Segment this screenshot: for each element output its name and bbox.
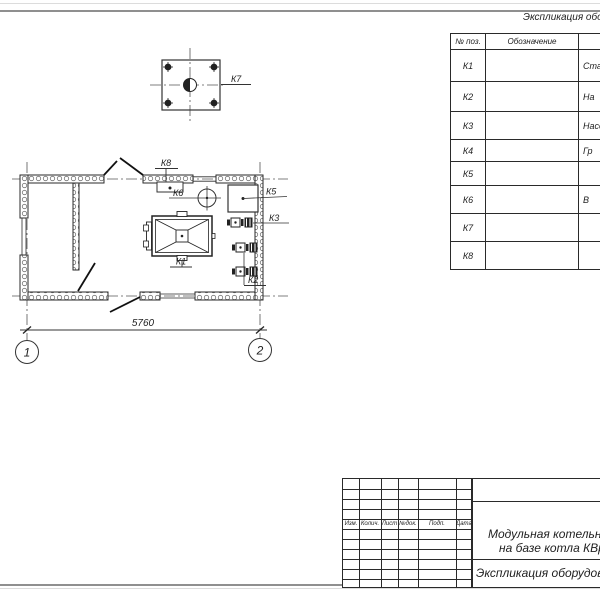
label-k2: К2 <box>248 275 258 285</box>
tb-col-list: Лист <box>381 519 398 529</box>
header-pos: № поз. <box>451 34 486 49</box>
boiler-k1: К1 <box>144 212 216 268</box>
cell-designation <box>486 242 579 269</box>
cell-designation <box>486 82 579 111</box>
title-block: Изм. Колич. Лист №док. Подп. Дата Модуль… <box>342 478 600 588</box>
cell-pos: К5 <box>451 162 486 185</box>
table-row: К4 Гр <box>451 139 600 161</box>
cell-designation <box>486 112 579 139</box>
cell-name: В <box>579 186 600 213</box>
title-block-line <box>343 579 471 580</box>
table-row: К1 Стал <box>451 49 600 81</box>
title-block-line <box>456 479 457 587</box>
table-row: К3 Насос <box>451 111 600 139</box>
label-k6: К6 <box>173 188 183 198</box>
title-block-line <box>343 539 471 540</box>
cell-name <box>579 214 600 241</box>
title-block-line <box>471 501 600 502</box>
table-row: К6 В <box>451 185 600 213</box>
cell-name: Стал <box>579 50 600 81</box>
title-block-line <box>343 569 471 570</box>
cell-pos: К7 <box>451 214 486 241</box>
title-block-line <box>381 479 382 587</box>
cell-name <box>579 242 600 269</box>
title-block-line <box>343 529 471 530</box>
tb-col-ndok: №док. <box>398 519 418 529</box>
title-block-line <box>343 559 471 560</box>
label-k7: К7 <box>231 74 242 84</box>
dimension-5760: 5760 <box>20 318 267 334</box>
dimension-value: 5760 <box>132 318 155 329</box>
boiler-nozzle-top <box>177 212 187 217</box>
project-title-line1: Модульная котельная <box>488 527 600 541</box>
door-leaf-bottom <box>110 297 140 312</box>
exterior-walls <box>20 175 263 300</box>
axis-bubble-2: 2 <box>256 344 264 358</box>
title-block-line <box>343 509 471 510</box>
label-k1: К1 <box>176 257 186 267</box>
wall-left-upper <box>20 175 28 218</box>
table-row: К7 <box>451 213 600 241</box>
tank-k5: К5 <box>228 185 287 212</box>
label-k3: К3 <box>269 213 279 223</box>
sheet-title: Экспликация оборудования <box>476 566 600 580</box>
header-designation: Обозначение <box>486 34 579 49</box>
cell-pos: К8 <box>451 242 486 269</box>
wall-bottom-left <box>20 292 108 300</box>
wall-left-lower <box>20 255 28 300</box>
cell-designation <box>486 186 579 213</box>
equipment-table: № поз. Обозначение К1 Стал К2 На К3 Насо… <box>450 33 600 270</box>
cell-pos: К2 <box>451 82 486 111</box>
title-block-line <box>343 549 471 550</box>
project-title-line2: на базе котла КВр <box>499 541 600 555</box>
door-leaf-top-2 <box>120 158 143 175</box>
cell-pos: К3 <box>451 112 486 139</box>
cell-designation <box>486 50 579 81</box>
equip-table-caption: Экспликация оборудования <box>523 12 600 23</box>
label-k8: К8 <box>161 158 171 168</box>
cell-designation <box>486 214 579 241</box>
header-name <box>579 34 600 49</box>
label-k5: К5 <box>266 187 277 197</box>
title-block-line <box>359 479 360 587</box>
tb-col-data: Дата <box>456 519 471 529</box>
cell-designation <box>486 140 579 161</box>
cell-name: На <box>579 82 600 111</box>
title-block-line <box>343 499 471 500</box>
axis-bubbles: 1 2 <box>16 339 272 364</box>
tb-col-izm: Изм. <box>343 519 359 529</box>
wall-bottom-mid <box>140 292 160 300</box>
table-row: К5 <box>451 161 600 185</box>
cell-pos: К6 <box>451 186 486 213</box>
cell-pos: К4 <box>451 140 486 161</box>
table-row: К2 На <box>451 81 600 111</box>
vent-k6: К6 <box>169 186 221 211</box>
door-leaf-interior <box>78 263 95 291</box>
partition-wall <box>73 183 79 270</box>
tb-col-kolich: Колич. <box>359 519 381 529</box>
cell-pos: К1 <box>451 50 486 81</box>
table-header-row: № поз. Обозначение <box>451 34 600 49</box>
cell-designation <box>486 162 579 185</box>
cell-name: Гр <box>579 140 600 161</box>
wall-bottom-right <box>195 292 263 300</box>
cell-name: Насос <box>579 112 600 139</box>
axis-bubble-1: 1 <box>24 346 31 360</box>
chimney-pipe-halffill <box>184 79 191 92</box>
wall-top-left <box>20 175 104 183</box>
tb-col-podp: Подп. <box>418 519 456 529</box>
title-block-line <box>398 479 399 587</box>
table-row: К8 <box>451 241 600 269</box>
title-block-line <box>471 479 473 587</box>
title-block-line <box>471 559 600 560</box>
door-leaf-top-1 <box>104 161 117 175</box>
cell-name <box>579 162 600 185</box>
title-block-line <box>418 479 419 587</box>
title-block-line <box>343 489 471 490</box>
